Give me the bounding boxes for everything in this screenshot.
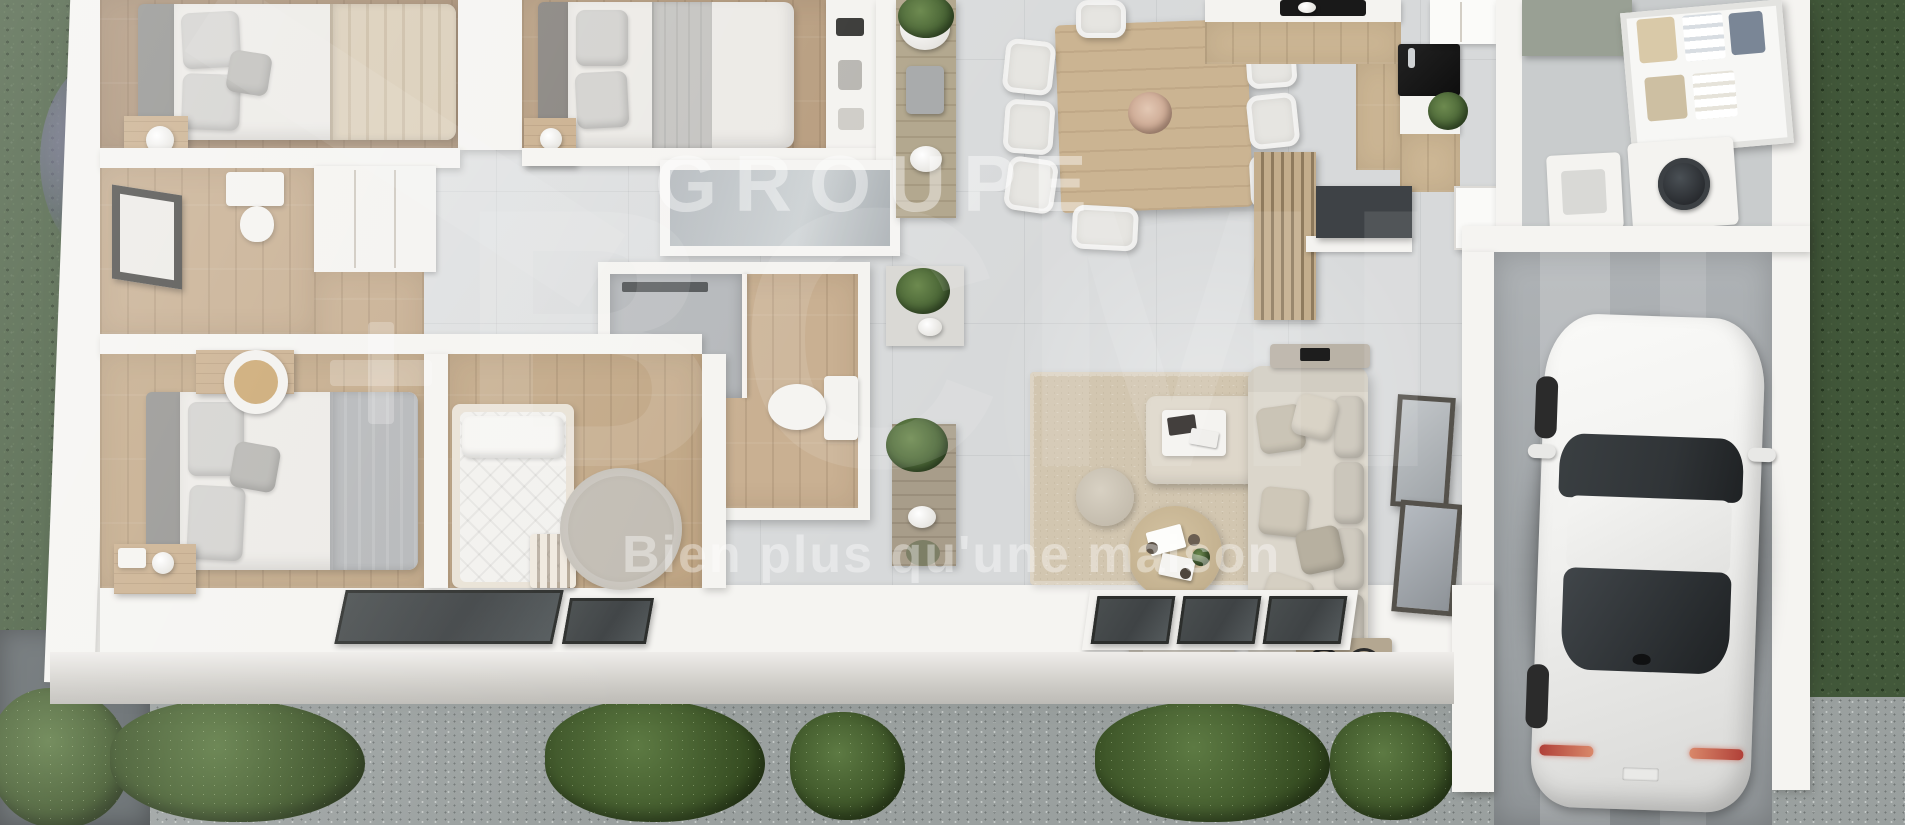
floorplan-3d-render: BCMI GROUPE Bien plus qu'une maison (0, 0, 1905, 825)
light-sweep (0, 0, 1905, 825)
